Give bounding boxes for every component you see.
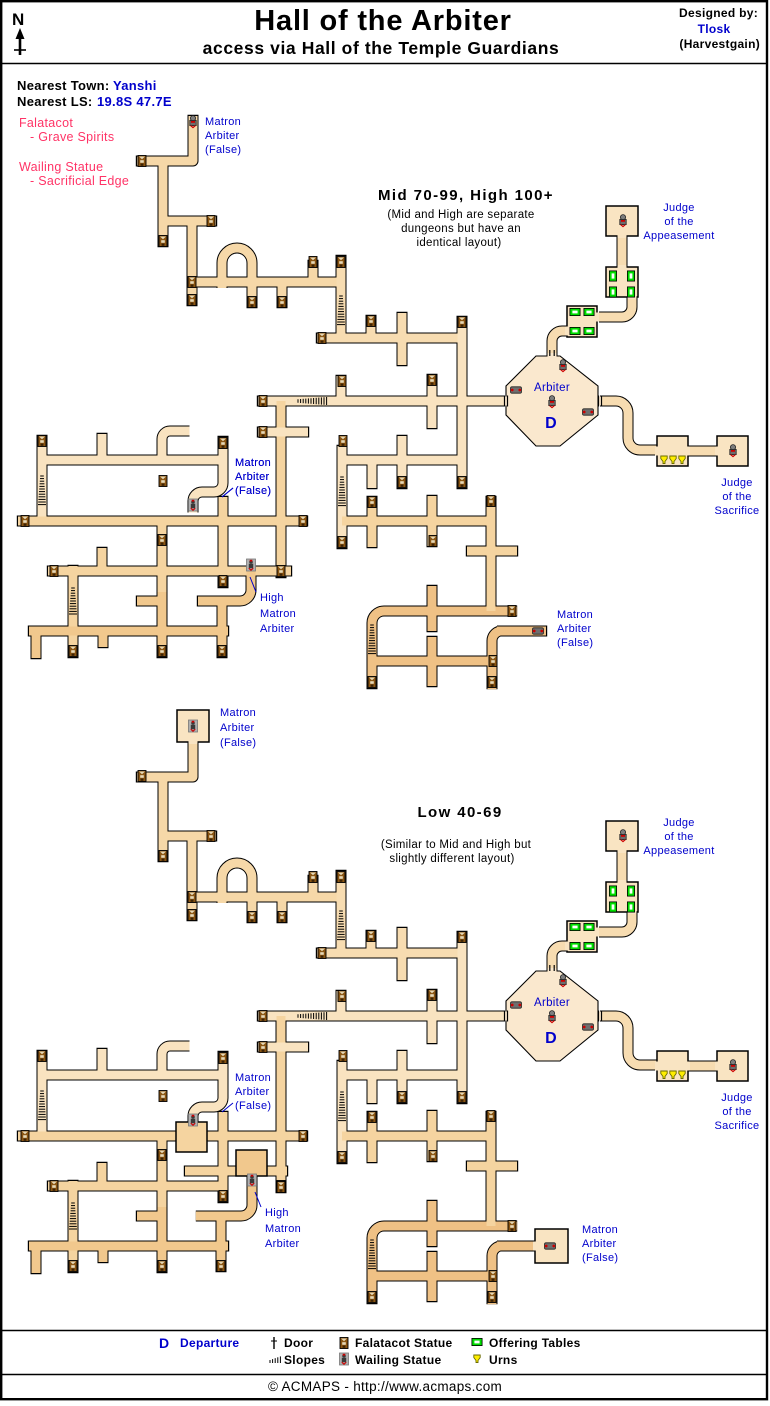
svg-text:slightly different layout): slightly different layout) [389, 853, 514, 865]
svg-text:Sacrifice: Sacrifice [715, 505, 760, 517]
svg-text:D: D [545, 415, 557, 432]
svg-text:Arbiter: Arbiter [260, 623, 295, 635]
svg-text:- Grave Spirits: - Grave Spirits [30, 130, 114, 144]
svg-text:access via Hall of the Temple: access via Hall of the Temple Guardians [203, 38, 560, 58]
svg-text:of the: of the [722, 1106, 751, 1118]
svg-text:Judge: Judge [663, 817, 694, 829]
svg-text:Appeasement: Appeasement [643, 230, 714, 242]
svg-text:Appeasement: Appeasement [643, 845, 714, 857]
svg-text:(False): (False) [205, 144, 241, 156]
svg-text:Departure: Departure [180, 1336, 239, 1350]
svg-text:(Mid and High are separate: (Mid and High are separate [387, 209, 534, 221]
svg-text:N: N [12, 10, 25, 29]
svg-text:Arbiter: Arbiter [534, 997, 570, 1009]
svg-text:Wailing Statue: Wailing Statue [355, 1353, 441, 1367]
svg-text:Matron: Matron [260, 608, 296, 620]
svg-text:Matron: Matron [557, 609, 593, 621]
svg-text:Slopes: Slopes [284, 1353, 325, 1367]
svg-text:Arbiter: Arbiter [265, 1238, 300, 1250]
svg-text:Sacrifice: Sacrifice [715, 1120, 760, 1132]
svg-text:Matron: Matron [205, 116, 241, 128]
svg-text:Door: Door [284, 1336, 313, 1350]
svg-text:19.8S 47.7E: 19.8S 47.7E [97, 94, 172, 109]
svg-text:identical layout): identical layout) [416, 237, 501, 249]
svg-text:Matron: Matron [582, 1224, 618, 1236]
svg-text:High: High [260, 592, 284, 604]
svg-text:Matron: Matron [220, 707, 256, 719]
svg-text:© ACMAPS - http://www.acmaps.c: © ACMAPS - http://www.acmaps.com [268, 1379, 502, 1394]
svg-text:(False): (False) [557, 637, 593, 649]
svg-text:Arbiter: Arbiter [220, 722, 255, 734]
svg-text:Wailing Statue: Wailing Statue [19, 160, 103, 174]
svg-text:Judge: Judge [663, 202, 694, 214]
svg-text:Judge: Judge [721, 477, 752, 489]
svg-text:Urns: Urns [489, 1353, 518, 1367]
svg-text:D: D [159, 1335, 169, 1351]
svg-text:Arbiter: Arbiter [235, 471, 270, 483]
svg-text:Arbiter: Arbiter [235, 1086, 270, 1098]
svg-text:Matron: Matron [235, 457, 271, 469]
svg-text:Yanshi: Yanshi [113, 78, 157, 93]
svg-text:Designed by:: Designed by: [679, 6, 758, 20]
svg-text:(False): (False) [582, 1252, 618, 1264]
svg-text:dungeons but have an: dungeons but have an [401, 223, 521, 235]
svg-text:Tlosk: Tlosk [698, 22, 731, 36]
svg-text:(Harvestgain): (Harvestgain) [679, 37, 760, 51]
svg-text:High: High [265, 1207, 289, 1219]
svg-text:(Similar to Mid and High but: (Similar to Mid and High but [381, 839, 532, 851]
svg-text:of the: of the [664, 216, 693, 228]
svg-text:Nearest LS:: Nearest LS: [17, 94, 93, 109]
svg-text:Arbiter: Arbiter [205, 130, 240, 142]
svg-text:D: D [545, 1030, 557, 1047]
svg-text:Matron: Matron [235, 1072, 271, 1084]
svg-text:of the: of the [664, 831, 693, 843]
svg-text:Arbiter: Arbiter [534, 382, 570, 394]
svg-text:Arbiter: Arbiter [582, 1238, 617, 1250]
svg-text:Nearest Town:: Nearest Town: [17, 78, 110, 93]
svg-text:(False): (False) [220, 737, 256, 749]
svg-text:Offering Tables: Offering Tables [489, 1336, 581, 1350]
svg-text:Falatacot: Falatacot [19, 116, 73, 130]
svg-text:(False): (False) [235, 1100, 271, 1112]
svg-text:of the: of the [722, 491, 751, 503]
svg-text:Arbiter: Arbiter [557, 623, 592, 635]
svg-text:Falatacot Statue: Falatacot Statue [355, 1336, 453, 1350]
svg-text:(False): (False) [235, 485, 271, 497]
svg-text:Mid 70-99, High 100+: Mid 70-99, High 100+ [378, 187, 554, 204]
svg-text:Matron: Matron [265, 1223, 301, 1235]
svg-text:Low 40-69: Low 40-69 [417, 804, 502, 821]
svg-text:Judge: Judge [721, 1092, 752, 1104]
svg-text:- Sacrificial Edge: - Sacrificial Edge [30, 174, 129, 188]
svg-text:Hall of the Arbiter: Hall of the Arbiter [254, 5, 511, 37]
